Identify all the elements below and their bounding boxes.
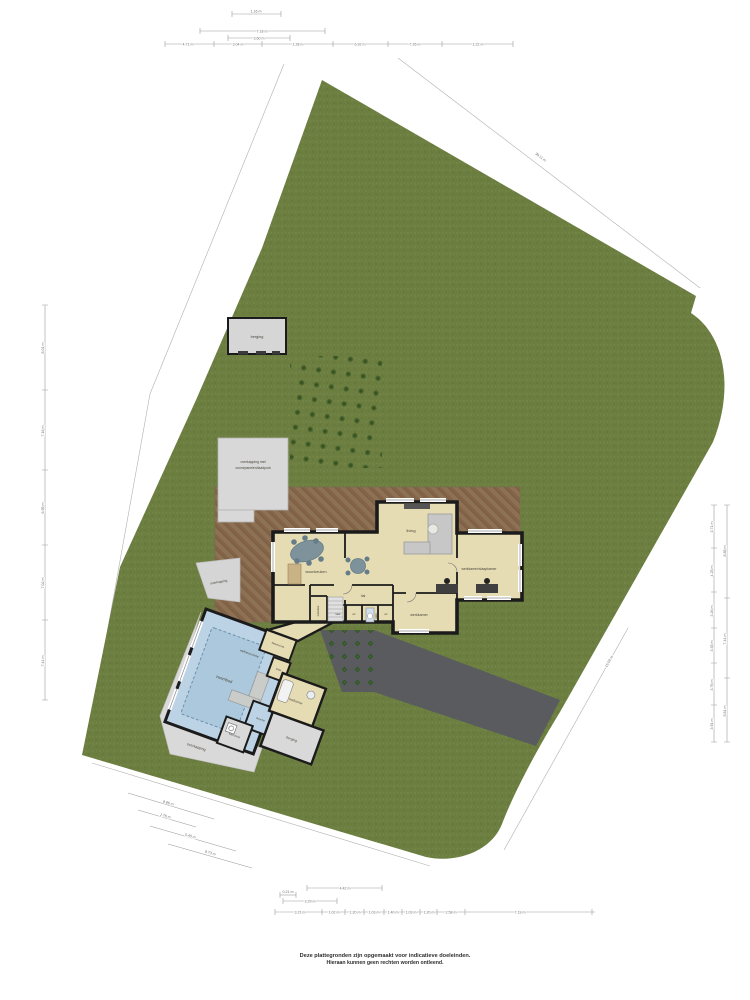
site-plan-page: berging overkapping met zonnepanelen/laa…: [0, 0, 750, 1000]
dim-top-mini: 1.16 m: [251, 10, 262, 14]
svg-text:7.02 m: 7.02 m: [41, 578, 45, 589]
svg-text:1.20 m: 1.20 m: [350, 910, 361, 914]
desk-2: [476, 584, 498, 593]
room-label-woonkeuken: woonkeuken: [305, 570, 326, 574]
room-label-office-bedroom: werkkamer/slaapkamer: [461, 567, 497, 571]
svg-text:3.26 m: 3.26 m: [710, 606, 714, 617]
room-label-living: living: [406, 528, 415, 533]
svg-text:7.26 m: 7.26 m: [410, 42, 421, 46]
dimensions-right: 3.71 m 4.25 m 3.26 m 3.35 m 3.76 m 3.91 …: [710, 505, 730, 742]
svg-text:1.76 m: 1.76 m: [159, 813, 171, 820]
orchard-rows: [290, 356, 382, 468]
svg-text:6.92 m: 6.92 m: [355, 42, 366, 46]
room-label-werkkamer: werkkamer: [410, 613, 428, 617]
carport-label-line1: overkapping met: [240, 460, 265, 464]
svg-text:5.40 m: 5.40 m: [184, 833, 196, 840]
svg-text:3.04 m: 3.04 m: [233, 42, 244, 46]
svg-text:6.95 m: 6.95 m: [41, 503, 45, 514]
svg-text:8.85 m: 8.85 m: [723, 546, 727, 557]
svg-text:3.76 m: 3.76 m: [710, 680, 714, 691]
dim-diag-bottom-right: 15.09 m: [604, 655, 614, 668]
round-table: [351, 559, 366, 574]
shed-label: berging: [251, 335, 264, 339]
dimensions-bottom: 4.42 m 0.21 m 3.29 m 3.21 m 1.02 m 1.20 …: [275, 885, 595, 915]
staircase: [328, 597, 343, 621]
garden-shed: berging: [228, 318, 286, 355]
svg-text:1.22 m: 1.22 m: [473, 42, 484, 46]
carport-label-line2: zonnepanelen/laadpunt: [235, 466, 270, 470]
carport: overkapping met zonnepanelen/laadpunt: [218, 438, 288, 522]
svg-text:7.44 m: 7.44 m: [41, 656, 45, 667]
site-plan-drawing: berging overkapping met zonnepanelen/laa…: [0, 0, 750, 1000]
dim-bottom-bracket: 4.42 m: [340, 886, 351, 890]
svg-text:8.01 m: 8.01 m: [41, 343, 45, 354]
dim-top-bracket-b: 3.60 m: [254, 36, 265, 40]
svg-text:3.91 m: 3.91 m: [710, 719, 714, 730]
svg-text:3.35 m: 3.35 m: [710, 641, 714, 652]
dim-bottom-small: 0.21 m: [283, 890, 294, 894]
dim-diag-top-right: 38.11 m: [534, 152, 547, 163]
dim-top-bracket-a: 7.18 m: [257, 29, 268, 33]
disclaimer-line2: Hieraan kunnen geen rechten worden ontle…: [326, 960, 444, 966]
dimensions-left: 8.01 m 7.16 m 6.95 m 7.02 m 7.44 m: [41, 305, 48, 700]
room-label-kast: kast: [336, 612, 341, 616]
kitchen-island: [288, 564, 301, 584]
svg-text:1.20 m: 1.20 m: [424, 910, 435, 914]
desk-1: [436, 584, 458, 593]
dimensions-top: 1.16 m 7.18 m 3.60 m 4.71 m 3.04 m 1.28 …: [165, 10, 513, 48]
svg-text:4.71 m: 4.71 m: [183, 42, 194, 46]
room-label-meterkast: meterkast: [317, 605, 320, 616]
svg-text:1.40 m: 1.40 m: [388, 910, 399, 914]
room-label-hal: hal: [361, 594, 366, 598]
dim-bottom-mid: 3.29 m: [305, 899, 316, 903]
sideboard: [404, 504, 430, 509]
svg-text:3.71 m: 3.71 m: [710, 522, 714, 533]
svg-text:3.21 m: 3.21 m: [295, 910, 306, 914]
svg-text:1.02 m: 1.02 m: [329, 910, 340, 914]
svg-text:1.03 m: 1.03 m: [406, 910, 417, 914]
svg-text:7.19 m: 7.19 m: [515, 910, 526, 914]
svg-text:5.81 m: 5.81 m: [723, 706, 727, 717]
sofa-chaise: [404, 542, 430, 554]
disclaimer-line1: Deze plattegronden zijn opgemaakt voor i…: [300, 953, 471, 959]
svg-text:7.44 m: 7.44 m: [723, 634, 727, 645]
room-label-toilet: toilet: [375, 613, 378, 618]
svg-text:7.16 m: 7.16 m: [41, 426, 45, 437]
svg-text:1.03 m: 1.03 m: [369, 910, 380, 914]
lounge-chair: [428, 524, 438, 534]
svg-text:8.73 m: 8.73 m: [204, 850, 216, 857]
svg-text:4.25 m: 4.25 m: [710, 566, 714, 577]
svg-text:2.58 m: 2.58 m: [446, 910, 457, 914]
svg-text:1.28 m: 1.28 m: [293, 42, 304, 46]
